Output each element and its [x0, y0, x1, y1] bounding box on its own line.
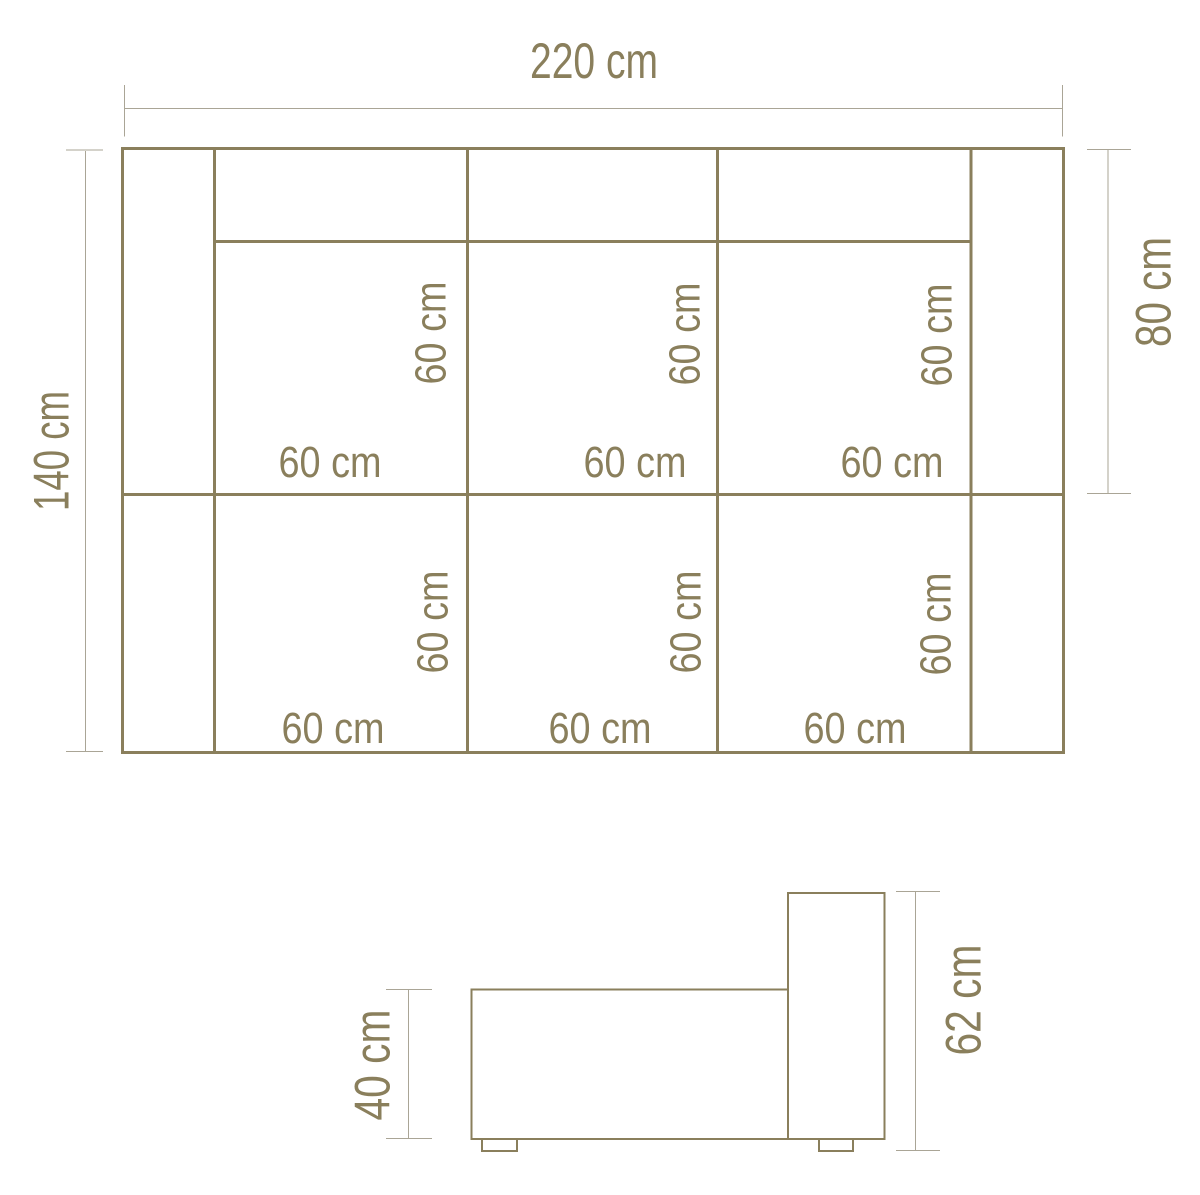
- svg-text:60 cm: 60 cm: [912, 573, 961, 676]
- svg-text:60 cm: 60 cm: [407, 282, 456, 385]
- svg-text:60 cm: 60 cm: [662, 571, 711, 674]
- svg-text:60 cm: 60 cm: [409, 571, 458, 674]
- svg-text:60 cm: 60 cm: [282, 704, 385, 753]
- svg-text:220 cm: 220 cm: [530, 33, 658, 89]
- svg-text:60 cm: 60 cm: [913, 284, 962, 387]
- svg-text:62 cm: 62 cm: [936, 945, 992, 1056]
- svg-text:40 cm: 40 cm: [345, 1010, 401, 1121]
- svg-text:60 cm: 60 cm: [584, 438, 687, 487]
- svg-text:80 cm: 80 cm: [1126, 237, 1182, 347]
- svg-text:140 cm: 140 cm: [24, 391, 80, 511]
- svg-text:60 cm: 60 cm: [841, 438, 944, 487]
- svg-text:60 cm: 60 cm: [661, 283, 710, 386]
- svg-text:60 cm: 60 cm: [279, 438, 382, 487]
- svg-text:60 cm: 60 cm: [804, 704, 907, 753]
- svg-text:60 cm: 60 cm: [549, 704, 652, 753]
